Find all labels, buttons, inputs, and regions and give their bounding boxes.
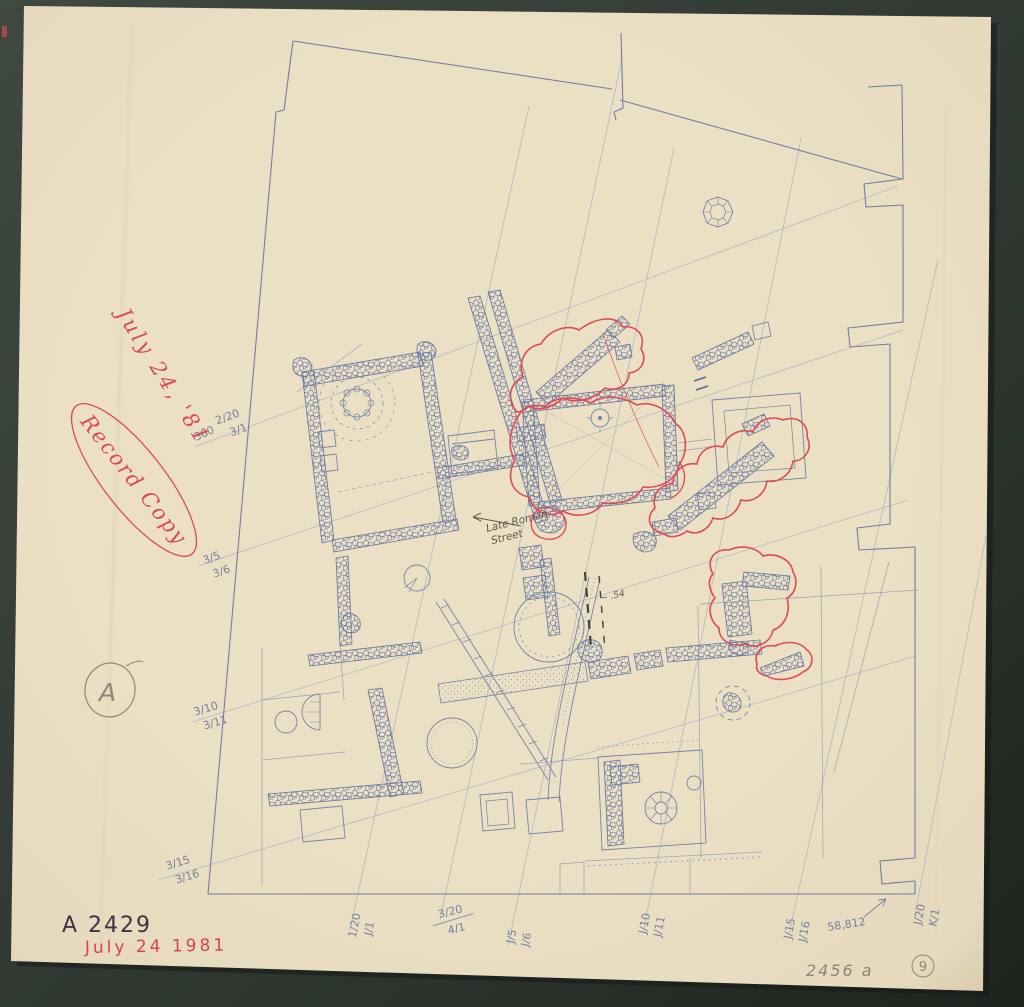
site-plan-scan: A 9 2/20 3/1 3/5 3/6 3/10 3/11 3/15 3/16… bbox=[0, 0, 1024, 1007]
red-date-bottom: July 24 1981 bbox=[84, 936, 228, 958]
red-edge-mark bbox=[2, 26, 7, 37]
scanned-plan-scene: A 9 2/20 3/1 3/5 3/6 3/10 3/11 3/15 3/16… bbox=[0, 0, 1024, 1007]
area-letter: A bbox=[97, 678, 116, 707]
sheet-number: 9 bbox=[919, 960, 927, 975]
negative-number: A 2429 bbox=[62, 913, 152, 938]
page-ref: 2456 a bbox=[806, 961, 874, 980]
